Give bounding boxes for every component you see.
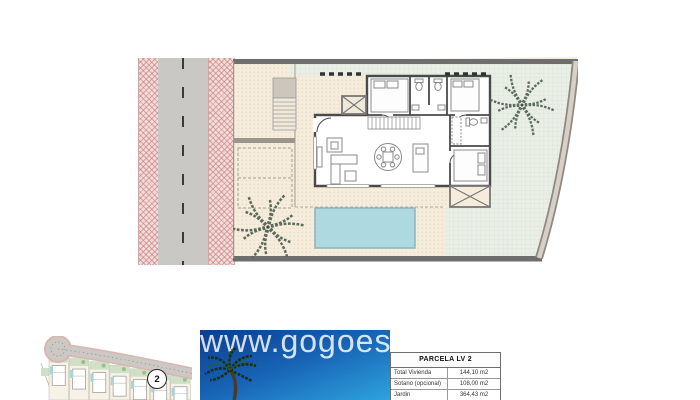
row-label: Sotano (opcional) [391,379,448,389]
mini-map-green-patch [41,368,50,376]
bed-ne [451,79,479,111]
row-value: 144,10 m2 [448,368,500,378]
parcel-number-badge: 2 [147,369,167,389]
development-mini-map: 2 [28,336,192,400]
swimming-pool [315,208,415,248]
road-centerline [182,58,185,265]
row-value: 108,00 m2 [448,379,500,389]
staircase [368,117,420,129]
parcel-table-title: PARCELA LV 2 [391,353,500,368]
row-value: 364,43 m2 [448,390,500,400]
parcel-number: 2 [154,374,159,385]
porch-xbox [450,186,490,207]
photo-palm-tree [200,330,390,400]
parcel-data-table: PARCELA LV 2 Total Vivienda 144,10 m2 So… [390,352,501,400]
road-sidewalk-right [208,58,235,265]
exterior-stairs [273,78,296,130]
listing-photo-thumbnail: www.gogoes [200,330,390,400]
row-label: Jardin [391,390,448,400]
table-row: Sotano (opcional) 108,00 m2 [391,379,500,390]
bed-nw [371,79,408,112]
listing-plan-image: 2 www.gogoes PARCELA LV 2 [0,0,700,400]
road-sidewalk-left [138,58,160,265]
parcel-plan [233,55,578,270]
skylight-xbox [342,96,366,114]
table-row: Total Vivienda 144,10 m2 [391,368,500,379]
table-row: Jardin 364,43 m2 [391,390,500,400]
mini-map-drawing [28,336,192,400]
kitchen-island [413,144,428,172]
bed-se [454,150,487,181]
row-label: Total Vivienda [391,368,448,378]
